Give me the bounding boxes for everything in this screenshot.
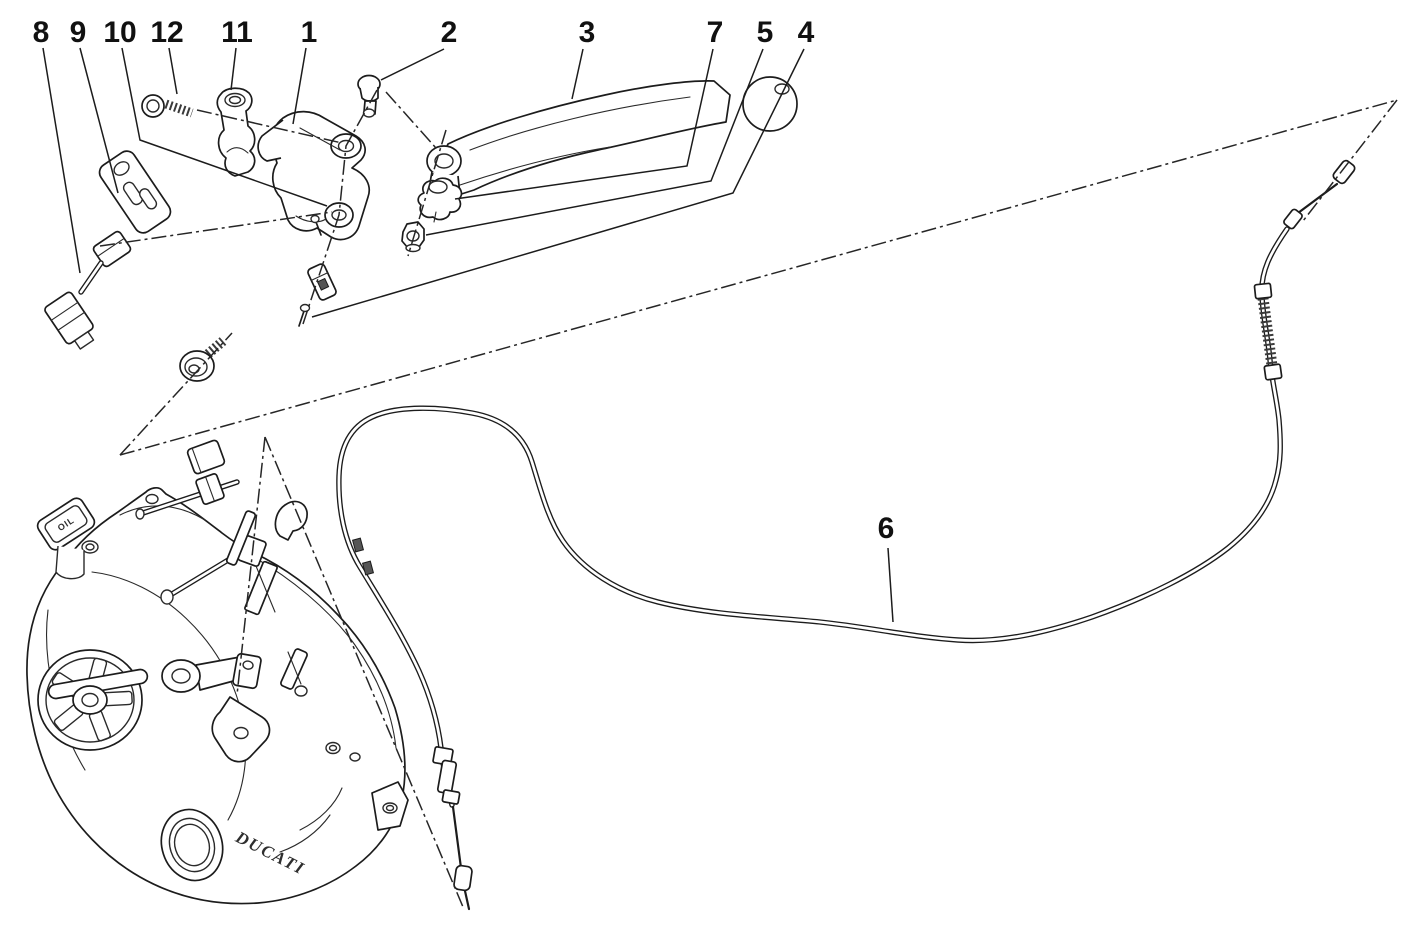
switch-stem-core [81, 263, 101, 292]
callout-label-3: 3 [579, 16, 596, 49]
top-clevis [187, 439, 226, 474]
adjuster-bolt-axis-centerline [120, 333, 232, 455]
pivot-screw-tip [364, 109, 375, 117]
cable-adjuster-bolt [180, 341, 223, 381]
end-screw-head [301, 305, 310, 312]
ear-hole-inner [387, 806, 394, 811]
clamp-screw [142, 95, 192, 117]
callout-leader-8 [43, 48, 80, 273]
bracket-ear [258, 120, 283, 161]
cable-clamp-mark [353, 538, 364, 552]
boot-top [429, 181, 447, 193]
barrel-body [1332, 159, 1357, 185]
callout-label-11: 11 [221, 16, 253, 49]
clamp-top-hole-inner [230, 97, 241, 104]
pivot-screw [358, 76, 380, 118]
handlebar-clamp [217, 88, 254, 176]
callout-leader-12 [169, 48, 177, 94]
pivot-screw-axis-centerline [386, 92, 436, 148]
bolt-boss-hole [330, 746, 337, 751]
callout-label-7: 7 [707, 16, 724, 49]
bolt-boss [146, 495, 158, 504]
lever-assembly [43, 76, 797, 382]
screw-socket [147, 100, 159, 112]
switch-assembly [43, 148, 174, 354]
switch-clamp-body [92, 230, 132, 268]
callout-leader-6 [888, 548, 893, 622]
cap-boss-hole [86, 544, 94, 550]
callout-label-8: 8 [33, 16, 50, 49]
cable-outer-sheath [339, 229, 1287, 805]
rod-end [136, 509, 144, 519]
cable-top-wire [1298, 184, 1337, 213]
callout-label-10: 10 [103, 16, 136, 49]
cable-tip-wire [465, 891, 469, 909]
arm-bolt [295, 686, 307, 696]
switch-clamp [92, 230, 132, 268]
cable-top-barrel [1332, 159, 1357, 185]
switch-bracket [96, 148, 174, 237]
callout-label-4: 4 [798, 16, 815, 49]
cable-bottom-barrel [453, 865, 472, 891]
top-clevis-body [187, 439, 226, 474]
top-adjuster-locknut [1264, 364, 1282, 380]
bolt-boss [350, 753, 360, 761]
end-screw [299, 305, 310, 327]
cable-guide-bracket [275, 501, 307, 540]
cable-bottom-wire [453, 807, 461, 868]
lever-ball-end [743, 77, 797, 131]
lower-adjuster-locknut [442, 790, 460, 805]
adjuster-nut [402, 222, 424, 252]
barrel-body [453, 865, 472, 891]
filler-neck [56, 546, 84, 579]
callout-label-12: 12 [150, 16, 183, 49]
callout-label-9: 9 [70, 16, 87, 49]
callout-label-1: 1 [301, 16, 318, 49]
clevis-fork [195, 473, 225, 505]
plate-hub-hole [82, 694, 98, 707]
screw-threads [166, 104, 192, 113]
parts-diagram-page: OIL DUCATI [0, 0, 1408, 949]
callout-leader-3 [572, 49, 583, 99]
cable-core-line [339, 229, 1287, 805]
lower-adjuster-body [437, 760, 456, 794]
cable-top-end-axis-centerline [1303, 100, 1397, 221]
clutch-cable [339, 159, 1356, 909]
adjuster-hole [189, 365, 199, 373]
arm-hub-hole [172, 669, 190, 683]
callout-leader-4 [312, 49, 804, 317]
callout-label-5: 5 [757, 16, 774, 49]
top-adjuster-collar [1254, 283, 1271, 299]
nut-collar [406, 245, 420, 252]
lever-blade [441, 81, 730, 197]
callout-label-6: 6 [878, 512, 895, 545]
callout-leader-2 [381, 49, 444, 80]
clutch-control-diagram: OIL DUCATI [0, 0, 1408, 949]
arm-clevis [232, 653, 261, 689]
callout-leader-11 [231, 48, 236, 90]
bracket-pin-head [311, 216, 319, 223]
microswitch-connector [43, 291, 100, 354]
callout-label-2: 2 [441, 16, 458, 49]
lower-arm-hole [234, 728, 248, 739]
pushrod-end [161, 590, 173, 604]
clutch-lever [427, 77, 797, 200]
